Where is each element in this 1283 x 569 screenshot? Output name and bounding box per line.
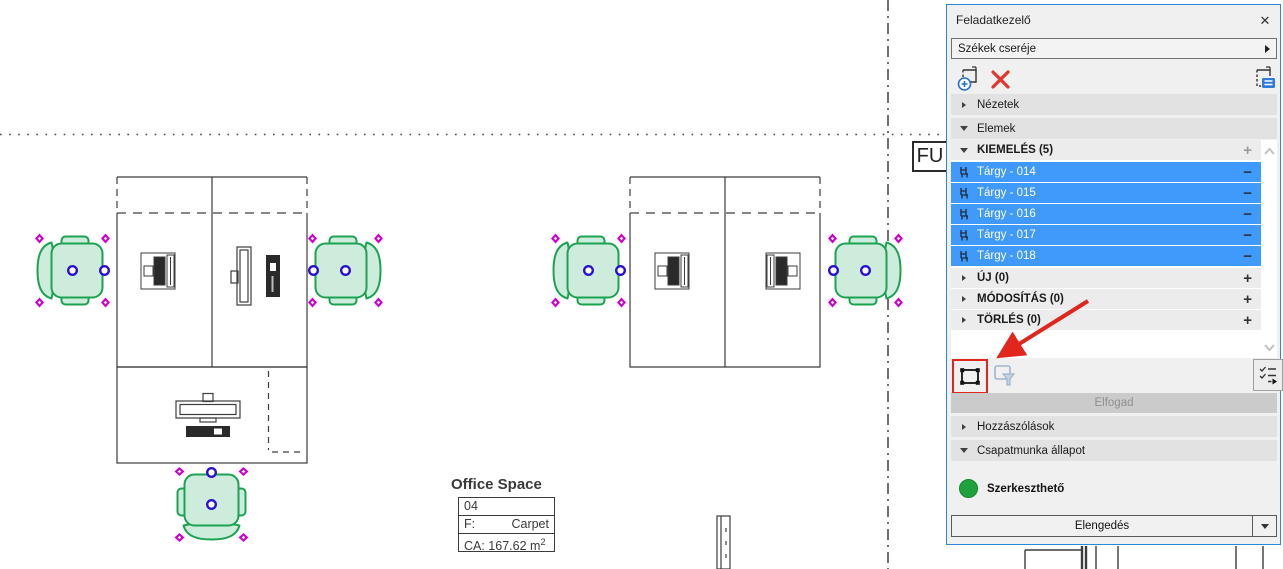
group-torles[interactable]: TÖRLÉS (0) + [951,310,1261,330]
group-torles-label: TÖRLÉS (0) [977,314,1041,326]
group-uj[interactable]: ÚJ (0) + [951,268,1261,288]
release-button[interactable]: Elengedés [951,515,1277,537]
pc-tower[interactable] [266,255,280,297]
chevron-down-icon [960,148,968,153]
wall-segment[interactable] [717,516,730,569]
add-element-button[interactable]: + [1243,143,1252,158]
elements-list: KIEMELÉS (5) + Tárgy - 014 − Tárgy - 015… [951,140,1277,358]
task-details-icon [1251,66,1277,92]
chair-icon [951,249,977,263]
list-scrollbar[interactable] [1262,140,1277,358]
chevron-down-icon [960,448,968,453]
desk-equipment-left[interactable] [141,247,280,437]
laptop[interactable] [141,253,175,289]
task-selector[interactable]: Székek cseréje [951,38,1277,59]
scroll-down-icon[interactable] [1262,341,1277,353]
laptop[interactable] [766,253,800,289]
status-green-dot [959,479,978,498]
group-uj-label: ÚJ (0) [977,272,1009,284]
keyboard[interactable] [186,426,230,437]
list-item-targy-015[interactable]: Tárgy - 015 − [951,183,1261,203]
chevron-right-icon [962,317,966,323]
list-item-targy-014[interactable]: Tárgy - 014 − [951,162,1261,182]
group-modositas[interactable]: MÓDOSÍTÁS (0) + [951,289,1261,309]
group-modositas-label: MÓDOSÍTÁS (0) [977,293,1064,305]
status-label: Szerkeszthető [987,483,1064,495]
list-item-label: Tárgy - 016 [977,208,1036,220]
remove-element-button[interactable]: − [1243,249,1252,264]
section-csapatmunka-label: Csapatmunka állapot [977,445,1085,457]
list-item-targy-018[interactable]: Tárgy - 018 − [951,246,1261,266]
new-task-button[interactable] [956,66,982,92]
chevron-right-icon [962,275,966,281]
add-element-button[interactable]: + [1243,292,1252,307]
section-elemek-label: Elemek [977,123,1015,135]
chevron-down-icon [960,126,968,131]
room-finish-value: Carpet [511,516,549,533]
list-item-label: Tárgy - 014 [977,166,1036,178]
group-kiemeles[interactable]: KIEMELÉS (5) + [951,140,1261,160]
list-item-targy-016[interactable]: Tárgy - 016 − [951,204,1261,224]
delete-icon [990,69,1012,91]
section-hozzaszolasok-label: Hozzászólások [977,421,1054,433]
chevron-right-icon [962,102,966,108]
scroll-up-icon[interactable] [1262,145,1277,157]
laptop[interactable] [655,253,689,289]
delete-task-button[interactable] [990,69,1012,91]
list-item-label: Tárgy - 015 [977,187,1036,199]
room-area: CA: 167.62 m2 [464,534,545,551]
remove-element-button[interactable]: − [1243,207,1252,222]
room-finish-row: F: Carpet [459,516,554,534]
desk-group-left[interactable] [117,177,307,463]
plan-lines-below-panel [1025,546,1263,569]
room-title[interactable]: Office Space [451,476,542,493]
accept-button[interactable]: Elfogad [951,393,1277,413]
chevron-right-icon [1265,45,1270,53]
meeting-screen[interactable] [176,394,240,423]
room-stamp[interactable]: 04 F: Carpet CA: 167.62 m2 [458,497,555,552]
release-button-label: Elengedés [952,516,1252,536]
group-kiemeles-label: KIEMELÉS (5) [977,144,1053,156]
grid-bubble[interactable]: FU [912,141,948,172]
list-item-label: Tárgy - 017 [977,229,1036,241]
chair-icon [951,228,977,242]
task-selector-value: Székek cseréje [958,43,1036,55]
list-options-button[interactable] [1253,359,1283,391]
close-icon[interactable]: ✕ [1255,11,1275,31]
task-manager-panel: Feladatkezelő ✕ Székek cseréje N [946,4,1281,545]
chevron-down-icon [1261,524,1269,529]
marquee-highlight-box [952,359,988,394]
new-task-icon [956,66,982,92]
chevron-right-icon [962,296,966,302]
chair-icon [951,186,977,200]
section-csapatmunka[interactable]: Csapatmunka állapot [951,440,1277,461]
chair-icon [951,165,977,179]
room-number: 04 [464,498,478,515]
room-finish-key: F: [464,516,475,533]
panel-title: Feladatkezelő [956,13,1031,27]
chevron-right-icon [962,424,966,430]
task-details-button[interactable] [1251,66,1277,92]
room-area-row: CA: 167.62 m2 [459,534,554,551]
list-item-label: Tárgy - 018 [977,250,1036,262]
release-dropdown[interactable] [1252,516,1276,536]
add-element-button[interactable]: + [1243,313,1252,328]
vertical-monitor[interactable] [231,247,251,305]
marquee-select-icon[interactable] [958,366,982,388]
section-elemek[interactable]: Elemek [951,118,1277,139]
app-root: { "canvas": { "grid_bubble": { "label": … [0,0,1283,569]
chair-icon [951,207,977,221]
selection-toolbar [951,357,1277,393]
checklist-menu-icon [1257,364,1279,386]
remove-element-button[interactable]: − [1243,228,1252,243]
accept-button-label: Elfogad [1094,397,1133,409]
grid-bubble-label: FU [917,145,944,168]
section-nezetek[interactable]: Nézetek [951,94,1277,115]
section-hozzaszolasok[interactable]: Hozzászólások [951,416,1277,437]
section-nezetek-label: Nézetek [977,99,1019,111]
room-number-row: 04 [459,498,554,516]
remove-element-button[interactable]: − [1243,186,1252,201]
add-element-button[interactable]: + [1243,271,1252,286]
filter-elements-icon[interactable] [993,364,1019,388]
list-item-targy-017[interactable]: Tárgy - 017 − [951,225,1261,245]
remove-element-button[interactable]: − [1243,165,1252,180]
